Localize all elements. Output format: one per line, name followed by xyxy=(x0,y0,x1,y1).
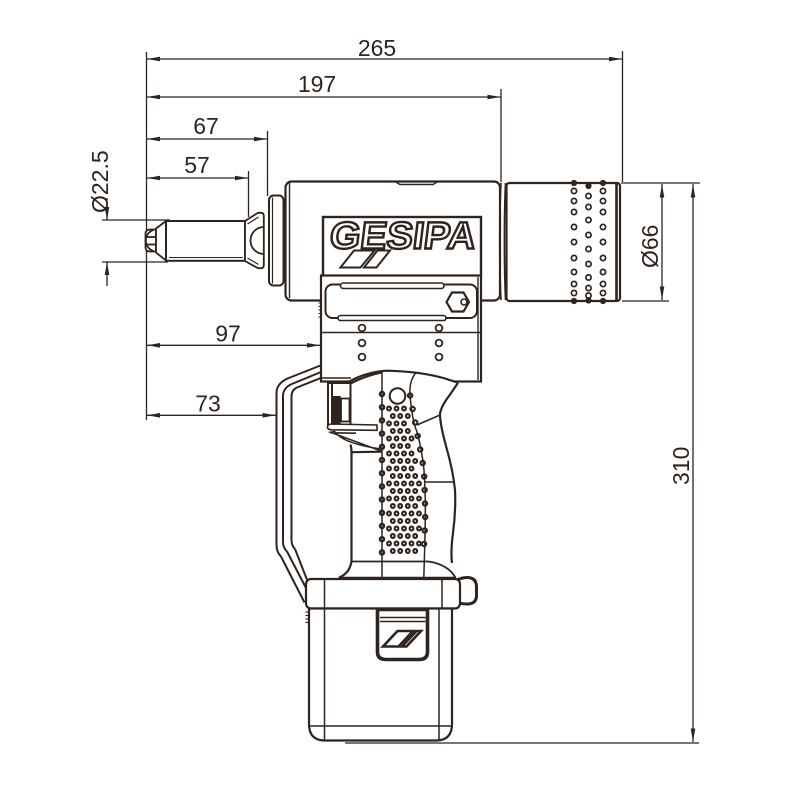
svg-text:265: 265 xyxy=(358,35,396,61)
svg-text:73: 73 xyxy=(195,391,221,417)
svg-text:57: 57 xyxy=(184,152,210,178)
svg-text:310: 310 xyxy=(668,447,694,485)
svg-text:Ø66: Ø66 xyxy=(637,225,663,268)
svg-text:GESIPA: GESIPA xyxy=(327,215,478,258)
svg-text:Ø22.5: Ø22.5 xyxy=(87,150,113,213)
svg-text:67: 67 xyxy=(193,113,219,139)
svg-text:97: 97 xyxy=(215,321,241,347)
svg-text:197: 197 xyxy=(298,71,336,97)
